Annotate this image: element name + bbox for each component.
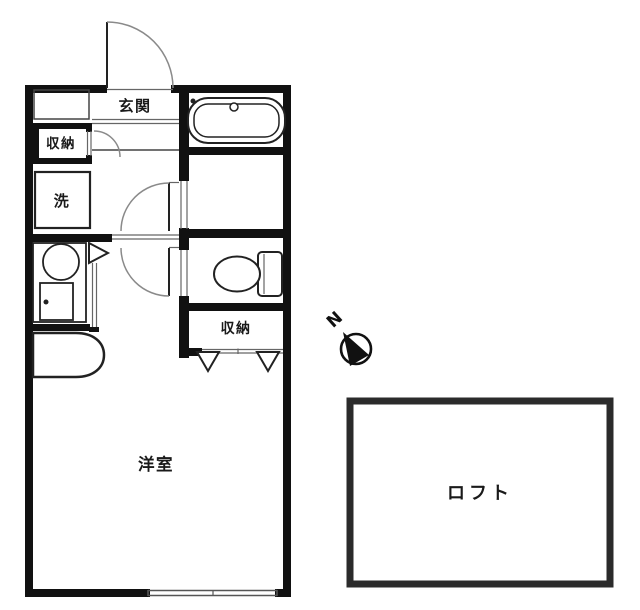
wall-kitchen-bottom <box>25 324 90 331</box>
wall-bath-bottom <box>179 147 291 155</box>
floorplan-canvas: N ロフト 玄関 収納 洗 収納 洋室 <box>0 0 640 610</box>
wall-toilet-top <box>179 229 291 238</box>
bathtub <box>188 98 285 143</box>
entrance-label: 玄関 <box>118 97 151 115</box>
storage-mid-label: 収納 <box>221 320 252 337</box>
drain-dot-icon <box>191 99 196 104</box>
wall-storage-left <box>33 123 39 164</box>
toilet <box>214 252 282 296</box>
wall-right <box>283 85 291 597</box>
storage-upper-label: 収納 <box>46 135 76 152</box>
faucet-icon <box>230 103 238 111</box>
wall-top-left <box>25 85 107 93</box>
wall-storage-top <box>33 123 92 129</box>
sink-icon <box>43 244 79 280</box>
wall-partition-cap <box>89 327 99 332</box>
cabinet-handle-dot <box>44 300 49 305</box>
wall-storage-bottom <box>33 158 92 164</box>
wall-center-upper <box>179 88 189 181</box>
loft: ロフト <box>350 401 610 584</box>
wall-bottom-left <box>25 589 150 597</box>
kitchen-unit <box>33 243 86 322</box>
wall-kitchen-top <box>25 234 112 242</box>
wall-toilet-bottom <box>179 303 291 311</box>
rounded-counter <box>33 333 104 377</box>
wall-storage-right-lower <box>86 155 92 164</box>
loft-label: ロフト <box>447 483 513 504</box>
laundry-label: 洗 <box>54 192 71 210</box>
wall-storage-right-upper <box>86 123 92 132</box>
main-room-label: 洋室 <box>138 454 174 474</box>
toilet-bowl <box>214 257 260 292</box>
toilet-tank <box>258 252 282 296</box>
